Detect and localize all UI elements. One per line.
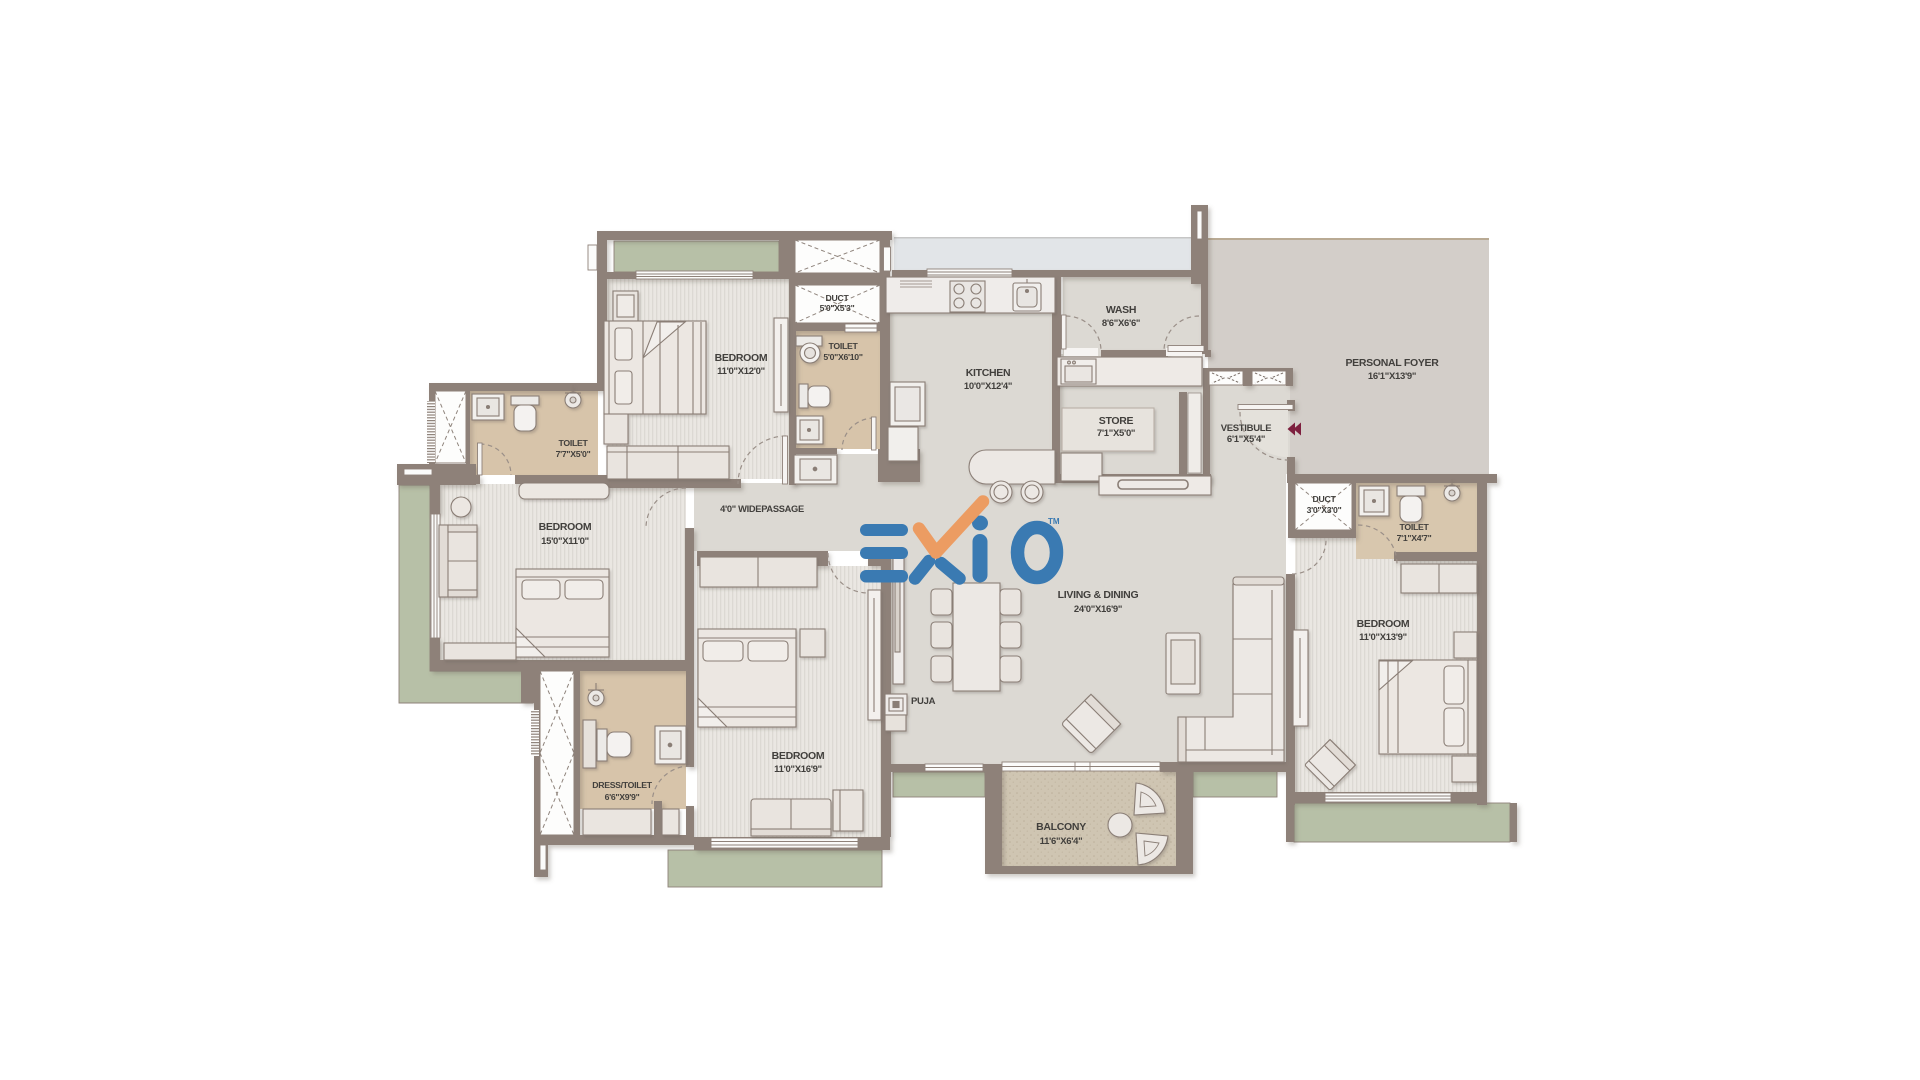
svg-text:4'0" WIDEPASSAGE: 4'0" WIDEPASSAGE (720, 504, 804, 514)
svg-text:11'6"X6'4": 11'6"X6'4" (1040, 836, 1083, 847)
svg-text:PERSONAL FOYER: PERSONAL FOYER (1345, 357, 1439, 369)
svg-text:24'0"X16'9": 24'0"X16'9" (1074, 604, 1122, 615)
svg-text:7'1"X5'0": 7'1"X5'0" (1097, 428, 1135, 439)
svg-text:VESTIBULE: VESTIBULE (1221, 423, 1272, 434)
svg-text:BEDROOM: BEDROOM (1357, 618, 1410, 630)
svg-text:TOILET: TOILET (1400, 522, 1430, 532)
svg-text:DUCT: DUCT (826, 293, 850, 303)
svg-text:16'1"X13'9": 16'1"X13'9" (1368, 371, 1416, 382)
svg-text:BEDROOM: BEDROOM (772, 750, 825, 762)
svg-text:TOILET: TOILET (829, 341, 859, 351)
svg-text:8'6"X6'6": 8'6"X6'6" (1102, 318, 1140, 329)
svg-text:BEDROOM: BEDROOM (715, 352, 768, 364)
svg-text:3'0"X3'0": 3'0"X3'0" (1307, 505, 1342, 515)
svg-text:6'1"X5'4": 6'1"X5'4" (1227, 434, 1265, 445)
svg-text:5'0"X5'3": 5'0"X5'3" (820, 303, 855, 313)
svg-text:STORE: STORE (1099, 415, 1134, 427)
svg-text:11'0"X16'9": 11'0"X16'9" (774, 764, 822, 775)
svg-text:TM: TM (1048, 517, 1060, 526)
svg-text:DUCT: DUCT (1313, 494, 1337, 504)
svg-text:BALCONY: BALCONY (1036, 821, 1086, 833)
svg-text:15'0"X11'0": 15'0"X11'0" (541, 536, 589, 547)
svg-text:5'0"X6'10": 5'0"X6'10" (823, 352, 863, 362)
svg-text:7'1"X4'7": 7'1"X4'7" (1397, 533, 1432, 543)
svg-text:10'0"X12'4": 10'0"X12'4" (964, 381, 1012, 392)
svg-text:11'0"X13'9": 11'0"X13'9" (1359, 632, 1407, 643)
svg-text:7'7"X5'0": 7'7"X5'0" (556, 449, 591, 459)
svg-text:11'0"X12'0": 11'0"X12'0" (717, 366, 765, 377)
svg-text:DRESS/TOILET: DRESS/TOILET (592, 780, 652, 790)
svg-text:WASH: WASH (1106, 304, 1136, 316)
svg-text:6'6"X9'9": 6'6"X9'9" (605, 792, 640, 802)
svg-text:LIVING & DINING: LIVING & DINING (1058, 589, 1139, 601)
svg-text:BEDROOM: BEDROOM (539, 521, 592, 533)
svg-text:PUJA: PUJA (911, 696, 936, 707)
svg-text:KITCHEN: KITCHEN (966, 367, 1011, 379)
svg-text:TOILET: TOILET (559, 438, 589, 448)
